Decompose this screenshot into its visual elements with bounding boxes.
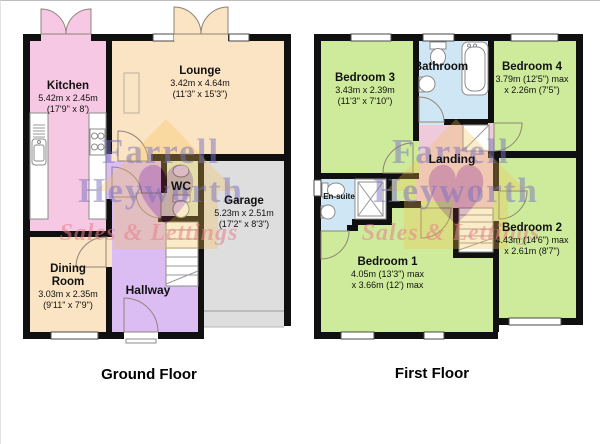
bathroom-window [423,34,454,41]
front-door-step [126,339,156,343]
room-dim-imperial: x 2.61m (8'7") [478,246,586,257]
bath-tap [474,44,477,47]
lounge-window [229,34,249,41]
wall [158,332,204,339]
room-dim-metric: 3.43m x 2.39m [315,85,415,96]
room-label-lounge: Lounge 3.42m x 4.64m (11'3" x 15'3") [150,65,250,99]
room-dim-imperial: (11'3" x 15'3") [150,89,250,100]
room-name: Bedroom 1 [330,256,445,269]
room-label-hallway: Hallway [108,284,188,297]
ground-floor-title: Ground Floor [79,366,219,383]
dining-door-opening [106,237,112,267]
room-name: Dining Room [38,263,98,289]
room-label-ensuite: En-suite [317,192,361,201]
lounge-french-door [174,7,201,34]
hob-base [90,129,105,155]
room-dim-metric: 3.42m x 4.64m [150,78,250,89]
room-label-landing: Landing [412,153,492,166]
front-door-opening [124,332,158,339]
room-label-bedroom4: Bedroom 4 3.79m (12'5") max x 2.26m (7'5… [478,61,586,95]
bedroom4-window [511,34,558,41]
bedroom2-window [509,318,561,325]
room-label-bathroom: Bathroom [401,61,481,74]
room-dim-metric: 4.43m (14'6") max [478,235,586,246]
wall [347,225,358,231]
lounge-french-door [201,7,228,34]
kitchen-french-door [41,9,66,34]
wall [488,151,576,158]
room-label-bedroom3: Bedroom 3 3.43m x 2.39m (11'3" x 7'10") [315,72,415,106]
room-dim-metric: 5.42m x 2.45m [18,93,118,104]
room-name: Bedroom 4 [478,61,586,74]
room-dim-metric: 5.23m x 2.51m [194,208,294,219]
room-dim-metric: 3.03m x 2.35m [38,289,98,300]
room-name: WC [161,180,201,193]
room-label-kitchen: Kitchen 5.42m x 2.45m (17'9" x 8') [18,80,118,114]
wall [386,173,392,225]
toilet-cistern [430,42,446,49]
lounge-window [153,34,174,41]
kitchen-french-door [66,9,91,34]
floorplan-image: Farrell Heyworth Sales & Lettings Farrel… [0,0,600,444]
dining-window [51,332,98,339]
room-label-bedroom1: Bedroom 1 4.05m (13'3") max x 3.66m (12'… [330,256,445,290]
bedroom1-window [341,332,374,339]
wall [106,267,112,332]
bedroom3-window [351,34,391,41]
wall [23,231,112,237]
wall [352,219,392,225]
kitchen-patio-opening [41,34,91,41]
sink-icon [419,76,435,92]
lounge-patio-opening [174,34,228,41]
kitchen-sink-icon [32,125,46,165]
room-dim-imperial: (11'3" x 7'10") [315,96,415,107]
room-name: Bedroom 3 [315,72,415,85]
wall [284,34,291,326]
room-label-dining: Dining Room 3.03m x 2.35m (9'11" x 7'9") [38,263,98,310]
room-dim-imperial: (17'2" x 8'3") [194,219,294,230]
room-name: Garage [194,195,294,208]
room-label-bedroom2: Bedroom 2 4.43m (14'6") max x 2.61m (8'7… [478,222,586,256]
room-dim-imperial: x 3.66m (12') max [330,280,445,291]
bedroom1-window [424,332,444,339]
bath-tap [468,44,471,47]
room-name: Bedroom 2 [478,222,586,235]
ensuite-door-opening [321,225,347,231]
kitchen-counter [30,113,48,219]
room-dim-imperial: (17'9" x 8') [18,104,118,115]
room-dim-imperial: x 2.26m (7'5") [478,85,586,96]
hob-icon [90,129,105,155]
room-label-garage: Garage 5.23m x 2.51m (17'2" x 8'3") [194,195,294,229]
room-label-wc: WC [161,180,201,193]
room-dim-metric: 4.05m (13'3") max [330,269,445,280]
sink-icon [321,205,335,219]
room-dim-imperial: (9'11" x 7'9") [38,300,98,311]
room-name: En-suite [317,192,361,201]
first-floor-title: First Floor [362,365,502,382]
sink-tap [38,141,41,144]
room-dim-metric: 3.79m (12'5") max [478,74,586,85]
room-name: Hallway [108,284,188,297]
room-name: Landing [412,153,492,166]
room-name: Kitchen [18,80,118,93]
room-name: Lounge [150,65,250,78]
room-name: Bathroom [401,61,481,74]
